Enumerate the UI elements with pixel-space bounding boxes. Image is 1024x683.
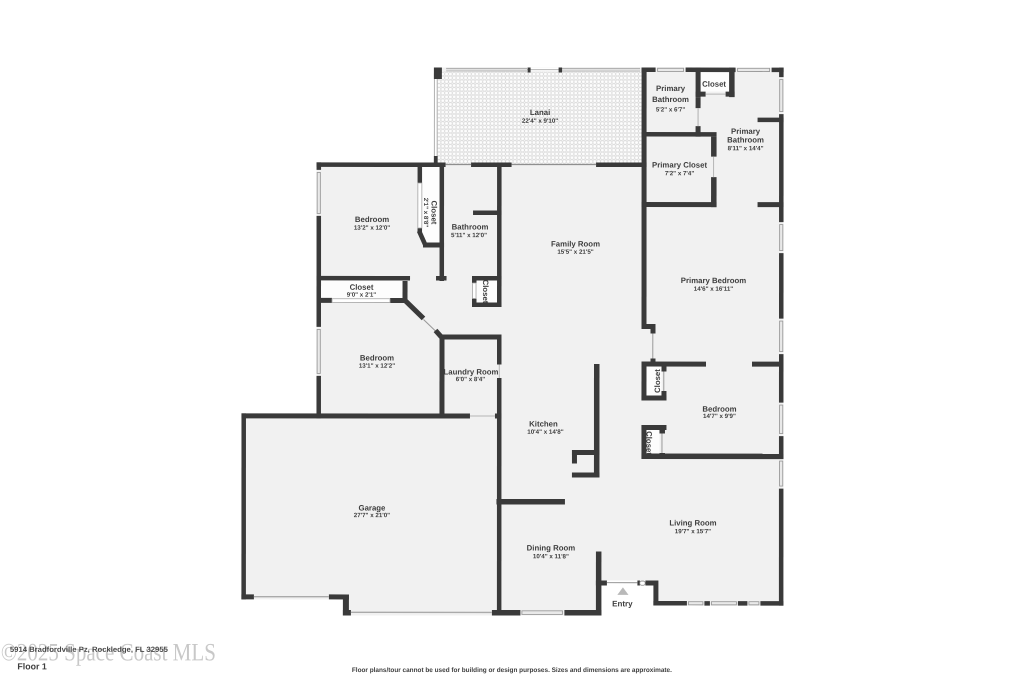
svg-text:Bathroom: Bathroom [452,222,489,231]
svg-text:19'7" x 15'7": 19'7" x 15'7" [675,528,711,535]
svg-text:Garage: Garage [359,503,387,512]
svg-text:Floor 1: Floor 1 [17,661,46,671]
svg-text:27'7" x 21'0": 27'7" x 21'0" [354,512,390,519]
svg-text:5'2" x 6'7": 5'2" x 6'7" [656,107,686,114]
svg-text:5914 Bradfordville Pz, Rockled: 5914 Bradfordville Pz, Rockledge, FL 329… [10,645,168,654]
svg-text:Dining Room: Dining Room [527,544,576,553]
svg-text:Entry: Entry [612,599,633,608]
svg-text:14'7" x 9'9": 14'7" x 9'9" [703,413,736,420]
svg-text:Closet: Closet [653,369,662,393]
svg-text:Bathroom: Bathroom [727,135,764,144]
svg-text:Primary Bedroom: Primary Bedroom [681,276,746,285]
svg-text:Lanai: Lanai [530,108,550,117]
svg-text:Primary Closet: Primary Closet [652,161,707,170]
svg-text:Kitchen: Kitchen [529,420,558,429]
svg-text:14'6" x 16'11": 14'6" x 16'11" [694,286,734,293]
svg-text:9'0" x 2'1": 9'0" x 2'1" [347,292,377,299]
svg-text:13'2" x 12'0": 13'2" x 12'0" [354,225,390,232]
svg-text:Primary: Primary [656,84,686,93]
svg-text:Living Room: Living Room [669,518,716,527]
svg-text:15'5" x 21'5": 15'5" x 21'5" [557,249,593,256]
svg-text:10'4" x 14'8": 10'4" x 14'8" [527,429,563,436]
svg-text:6'0" x 8'4": 6'0" x 8'4" [456,376,486,383]
svg-text:Closet: Closet [644,431,653,455]
svg-text:2'1" x 8'8": 2'1" x 8'8" [422,198,429,228]
svg-text:Family Room: Family Room [551,240,600,249]
svg-text:22'4" x 9'10": 22'4" x 9'10" [522,118,558,125]
svg-text:Bathroom: Bathroom [652,95,689,104]
svg-text:5'11" x 12'0": 5'11" x 12'0" [451,232,487,239]
svg-text:Floor plans/tour cannot be use: Floor plans/tour cannot be used for buil… [352,667,672,674]
svg-text:Laundry Room: Laundry Room [443,367,498,376]
svg-text:13'1" x 12'2": 13'1" x 12'2" [359,363,395,370]
svg-text:7'2" x 7'4": 7'2" x 7'4" [665,170,695,177]
svg-text:8'11" x 14'4": 8'11" x 14'4" [728,145,764,152]
svg-text:Closet: Closet [702,80,726,89]
svg-text:Bedroom: Bedroom [360,353,394,362]
svg-text:10'4" x 11'8": 10'4" x 11'8" [533,553,569,560]
svg-text:Closet: Closet [350,283,374,292]
svg-text:Closet: Closet [430,201,439,225]
svg-text:Closet: Closet [481,280,490,304]
svg-text:Bedroom: Bedroom [355,215,389,224]
